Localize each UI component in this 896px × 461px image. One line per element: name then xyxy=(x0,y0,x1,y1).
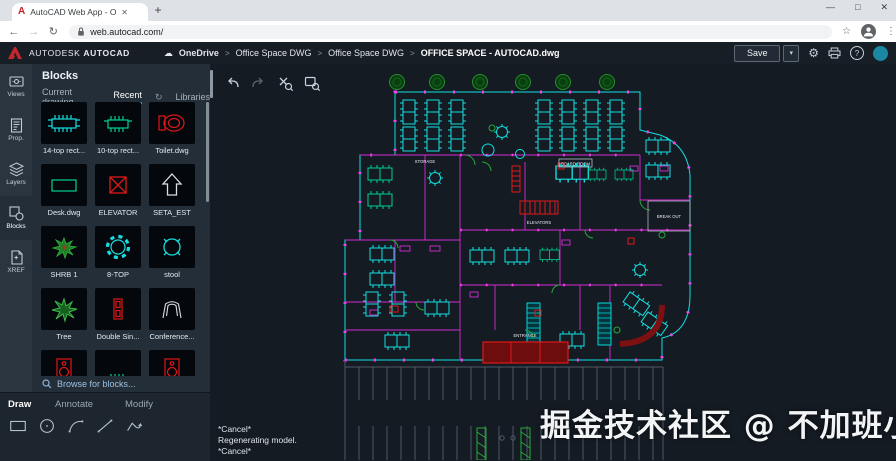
profile-avatar-icon[interactable] xyxy=(861,24,876,39)
browse-for-blocks-link[interactable]: Browse for blocks... xyxy=(32,376,210,392)
conference-chair-icon xyxy=(149,288,195,330)
search-icon xyxy=(42,379,52,389)
table-10-top-icon xyxy=(95,102,141,144)
command-line-history: *Cancel* Regenerating model. *Cancel* xyxy=(218,424,297,457)
back-icon[interactable]: ← xyxy=(4,26,24,38)
reload-icon[interactable]: ↻ xyxy=(44,25,64,38)
label-elevators: ELEVATORS xyxy=(527,220,552,225)
breadcrumb-sep-icon: > xyxy=(317,49,322,58)
breadcrumb-sep-icon: > xyxy=(225,49,230,58)
table-14-top-icon xyxy=(41,102,87,144)
tool-arc-button[interactable] xyxy=(66,416,86,436)
sync-icon[interactable]: ↻ xyxy=(155,92,163,103)
tab-title: AutoCAD Web App - Online CAD xyxy=(30,7,116,17)
block-card-tree[interactable]: Tree xyxy=(41,288,87,341)
command-line-entry: *Cancel* xyxy=(218,446,297,457)
desk-icon xyxy=(41,164,87,206)
autodesk-logo-icon xyxy=(8,47,22,59)
measure-zoom-icon[interactable] xyxy=(276,74,294,91)
rail-item-views[interactable]: Views xyxy=(0,64,32,108)
double-sink-icon xyxy=(95,288,141,330)
shrub-icon xyxy=(41,226,87,268)
maximize-icon[interactable]: □ xyxy=(855,2,860,13)
label-break-out: BREAK OUT xyxy=(657,214,682,219)
block-card-stool[interactable]: stool xyxy=(149,226,195,279)
header-actions: Save ▾ ⚙ ? xyxy=(734,45,888,62)
plan-magenta-desks xyxy=(370,166,668,315)
tab-modify[interactable]: Modify xyxy=(125,399,153,410)
block-card-toilet[interactable]: Toilet.dwg xyxy=(149,102,195,155)
new-tab-button[interactable]: + xyxy=(150,3,166,17)
breadcrumb-folder-1[interactable]: Office Space DWG xyxy=(236,48,312,58)
block-card-seta-est[interactable]: SETA_EST xyxy=(149,164,195,217)
panel-resize-handle[interactable] xyxy=(210,70,213,98)
block-card-14-top[interactable]: 14-top rect... xyxy=(41,102,87,155)
redo-icon[interactable] xyxy=(250,75,267,90)
round-table-8-icon xyxy=(95,226,141,268)
breadcrumb-onedrive[interactable]: OneDrive xyxy=(179,48,219,58)
plan-wall-nodes-inner xyxy=(460,155,690,285)
blocks-panel: Blocks Current drawing Recent ↻ Librarie… xyxy=(32,64,210,392)
url-text: web.autocad.com/ xyxy=(90,27,163,37)
views-icon xyxy=(9,74,24,89)
help-icon[interactable]: ? xyxy=(850,46,864,60)
browser-tab[interactable]: A AutoCAD Web App - Online CAD ✕ xyxy=(12,3,148,21)
block-grid: 14-top rect... 10-top rect... xyxy=(41,102,195,392)
tab-draw[interactable]: Draw xyxy=(8,399,31,410)
browser-menu-icon[interactable]: ⋮ xyxy=(886,26,896,37)
brand-text: AUTODESK AUTOCAD xyxy=(29,48,130,58)
blocks-icon xyxy=(9,206,24,221)
label-storage: STORAGE xyxy=(415,159,436,164)
forward-icon[interactable]: → xyxy=(24,26,44,38)
up-arrow-icon xyxy=(149,164,195,206)
draw-ribbon: Draw Annotate Modify xyxy=(0,392,210,461)
rail-item-blocks[interactable]: Blocks xyxy=(0,196,32,240)
plan-desk-clusters xyxy=(363,100,670,350)
stool-icon xyxy=(149,226,195,268)
minimize-icon[interactable]: — xyxy=(826,2,835,13)
address-field[interactable]: web.autocad.com/ xyxy=(69,25,832,39)
plan-stairs xyxy=(527,303,611,345)
command-line-entry: *Cancel* xyxy=(218,424,297,435)
plan-outer-walls xyxy=(345,92,690,360)
tool-rectangle-button[interactable] xyxy=(8,416,28,436)
properties-icon xyxy=(9,118,24,133)
browser-actions: ☆ ⋮ xyxy=(842,24,896,39)
block-card-8-top[interactable]: 8-TOP xyxy=(95,226,141,279)
plan-trees xyxy=(390,75,615,90)
autocad-favicon: A xyxy=(18,7,25,17)
undo-icon[interactable] xyxy=(224,75,241,90)
panel-scrollbar[interactable] xyxy=(206,102,209,202)
block-card-elevator[interactable]: ELEVATOR xyxy=(95,164,141,217)
breadcrumb-folder-2[interactable]: Office Space DWG xyxy=(328,48,404,58)
xref-icon xyxy=(9,250,24,265)
breadcrumb-filename: OFFICE SPACE - AUTOCAD.dwg xyxy=(421,48,560,58)
block-card-desk[interactable]: Desk.dwg xyxy=(41,164,87,217)
block-card-conference[interactable]: Conference... xyxy=(149,288,195,341)
tab-libraries[interactable]: Libraries xyxy=(175,92,210,102)
panel-title: Blocks xyxy=(42,70,78,82)
browser-url-bar: ← → ↻ web.autocad.com/ ☆ ⋮ xyxy=(0,21,896,43)
watermark-text: 掘金技术社区 @ 不加班小能手 xyxy=(540,400,896,445)
app-header: AUTODESK AUTOCAD ☁ OneDrive > Office Spa… xyxy=(0,42,896,64)
rail-item-layers[interactable]: Layers xyxy=(0,152,32,196)
rail-item-properties[interactable]: Prop. xyxy=(0,108,32,152)
tab-close-icon[interactable]: ✕ xyxy=(121,8,128,17)
label-entrance: ENTRANCE xyxy=(513,333,536,338)
breadcrumb-sep-icon: > xyxy=(410,49,415,58)
tool-circle-button[interactable] xyxy=(37,416,57,436)
command-line-entry: Regenerating model. xyxy=(218,435,297,446)
autocad-web-app-window: { "browser": {"tab_title": "AutoCAD Web … xyxy=(0,0,896,460)
settings-gear-icon[interactable]: ⚙ xyxy=(808,47,819,59)
window-controls: — □ ✕ xyxy=(826,2,888,13)
rail-item-xref[interactable]: XREF xyxy=(0,240,32,284)
block-card-shrb1[interactable]: SHRB 1 xyxy=(41,226,87,279)
tool-polyline-button[interactable] xyxy=(124,416,144,436)
left-tool-rail: Views Prop. Layers Blocks XREF xyxy=(0,64,32,392)
browser-tab-strip: A AutoCAD Web App - Online CAD ✕ + — □ ✕ xyxy=(0,0,896,21)
label-board-room: BOARD ROOM xyxy=(561,161,591,166)
toilet-icon xyxy=(149,102,195,144)
plan-wall-nodes xyxy=(345,92,690,360)
layers-icon xyxy=(9,162,24,177)
save-button[interactable]: Save xyxy=(734,45,780,62)
save-dropdown-caret-icon[interactable]: ▾ xyxy=(783,45,799,62)
elevator-icon xyxy=(95,164,141,206)
block-card-double-sink[interactable]: Double Sin... xyxy=(95,288,141,341)
onedrive-cloud-icon: ☁ xyxy=(164,48,173,59)
print-icon[interactable] xyxy=(828,47,841,59)
canvas-toolbar xyxy=(224,74,321,91)
tab-annotate[interactable]: Annotate xyxy=(55,399,93,410)
zoom-window-icon[interactable] xyxy=(303,74,321,91)
bookmark-star-icon[interactable]: ☆ xyxy=(842,26,851,37)
block-card-10-top[interactable]: 10-top rect... xyxy=(95,102,141,155)
breadcrumb: ☁ OneDrive > Office Space DWG > Office S… xyxy=(164,48,560,59)
tool-line-button[interactable] xyxy=(95,416,115,436)
window-close-icon[interactable]: ✕ xyxy=(880,2,888,13)
tree-icon xyxy=(41,288,87,330)
user-avatar[interactable] xyxy=(873,46,888,61)
lock-icon xyxy=(77,27,85,37)
